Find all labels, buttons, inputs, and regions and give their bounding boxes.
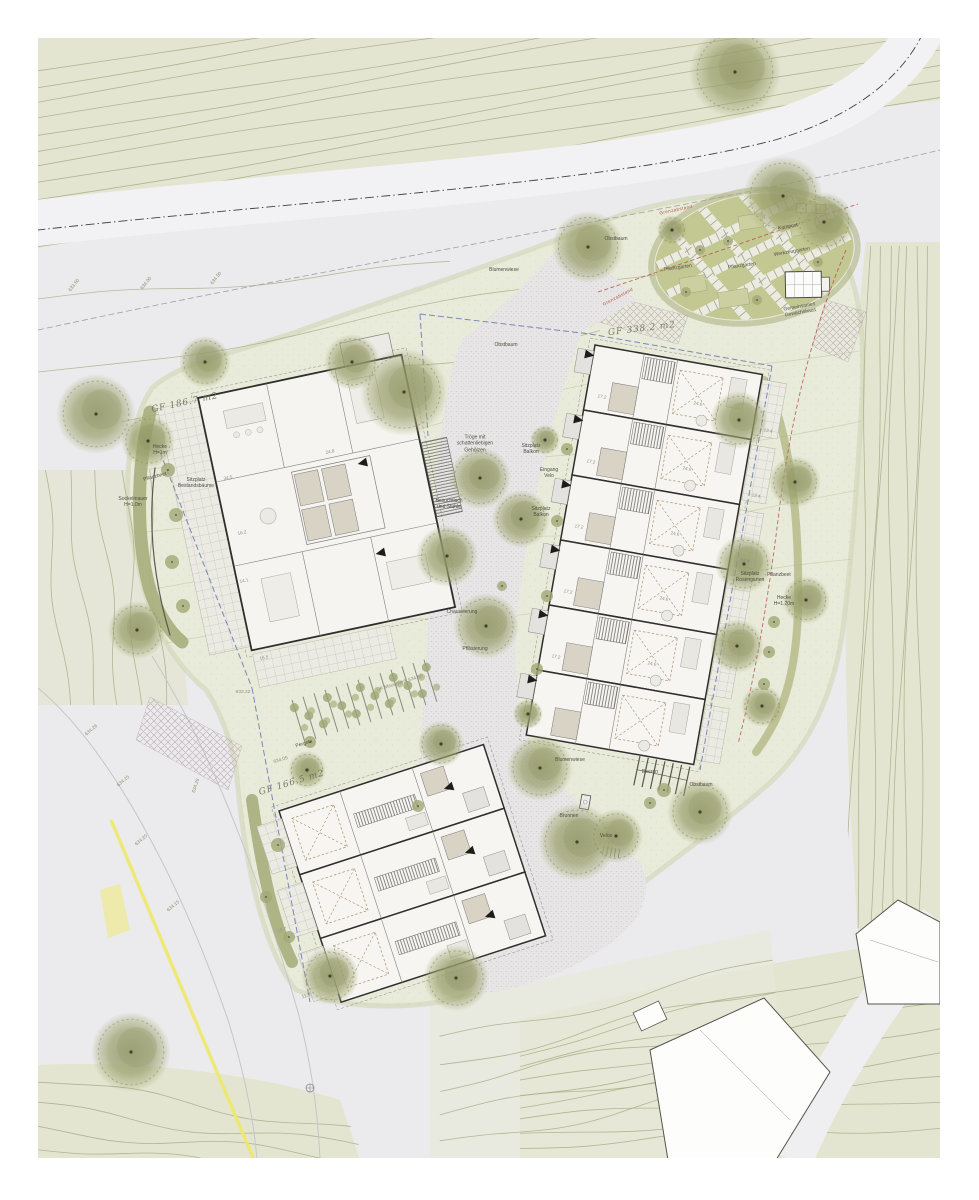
tree [589, 809, 643, 863]
shrub [695, 245, 705, 255]
tree [492, 490, 550, 548]
tree [416, 525, 478, 587]
site-plan-drawing [0, 0, 979, 1200]
shrub [723, 236, 733, 246]
tree [108, 601, 166, 659]
tree [657, 215, 687, 245]
tree [91, 1012, 171, 1092]
tree [513, 699, 543, 729]
site-plan-canvas: GF 186.7 m2GF 338.2 m2GF 166.5 m2Kompost… [0, 0, 979, 1200]
tree [715, 535, 773, 593]
shrub [551, 515, 563, 527]
tree [782, 576, 830, 624]
tree [769, 456, 821, 508]
tree [552, 211, 624, 283]
tree [710, 391, 768, 449]
tree [301, 947, 359, 1005]
tree [453, 593, 519, 659]
tree [507, 735, 573, 801]
tree [741, 685, 783, 727]
shrub [497, 581, 507, 591]
tree [530, 425, 560, 455]
tree [667, 779, 733, 845]
shrub [271, 838, 285, 852]
tree [689, 26, 781, 118]
shrub [176, 599, 190, 613]
shrub [644, 797, 656, 809]
shrub [758, 678, 770, 690]
shrub [541, 590, 553, 602]
manhole [306, 1084, 314, 1092]
shrub [161, 463, 175, 477]
shrub [763, 646, 775, 658]
tree [324, 334, 380, 390]
shrub [561, 443, 573, 455]
shrub [304, 736, 316, 748]
shrub [169, 508, 183, 522]
tree [423, 945, 489, 1011]
tree [710, 619, 764, 673]
tree [418, 721, 464, 767]
tree [179, 336, 231, 388]
shrub [768, 616, 780, 628]
shrub [412, 800, 424, 812]
shrub [681, 287, 691, 297]
tree [121, 414, 175, 468]
shrub [283, 931, 295, 943]
shrub [752, 295, 762, 305]
shrub [657, 783, 671, 797]
shrub [813, 257, 823, 267]
shrub [531, 663, 543, 675]
tree [794, 192, 854, 252]
shrub [260, 891, 272, 903]
shrub [165, 555, 179, 569]
tree [288, 751, 326, 789]
